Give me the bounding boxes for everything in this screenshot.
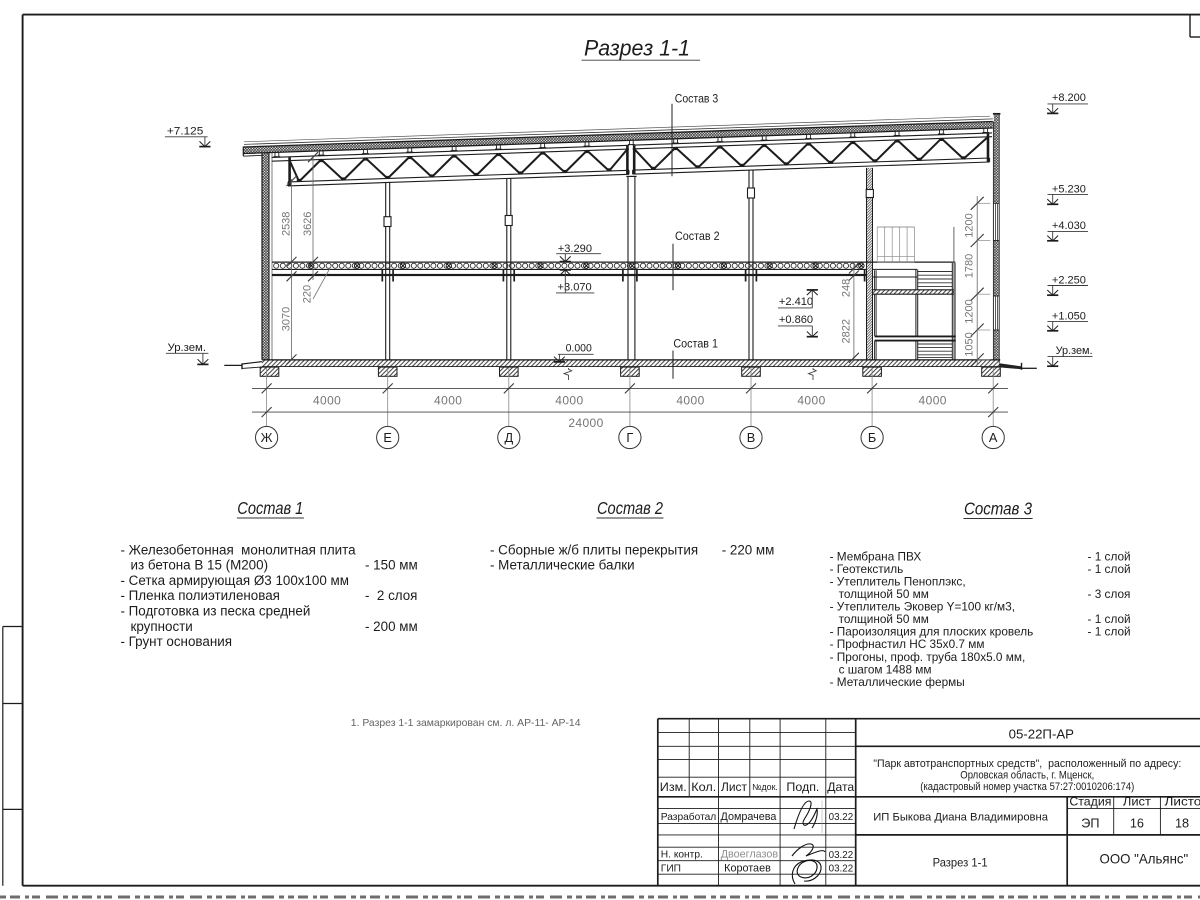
svg-text:03.22: 03.22 [829, 850, 854, 861]
svg-text:1200: 1200 [964, 213, 976, 237]
svg-text:Состав 1: Состав 1 [673, 337, 718, 351]
svg-text:В: В [747, 430, 756, 445]
svg-text:Ур.зем.: Ур.зем. [168, 342, 207, 354]
svg-text:Орловская область, г. Мценск,: Орловская область, г. Мценск, [960, 770, 1094, 782]
svg-text:Коротаев: Коротаев [724, 863, 771, 875]
svg-text:4000: 4000 [434, 394, 462, 408]
svg-text:1780: 1780 [964, 254, 976, 278]
svg-text:3626: 3626 [302, 212, 314, 236]
svg-text:+2.250: +2.250 [1052, 274, 1086, 286]
svg-text:Лист: Лист [721, 780, 747, 794]
svg-text:Домрачева: Домрачева [721, 811, 777, 823]
svg-text:4000: 4000 [676, 394, 704, 408]
svg-text:Е: Е [383, 430, 392, 445]
svg-text:№док.: №док. [752, 782, 778, 792]
svg-text:18: 18 [1175, 817, 1189, 831]
svg-text:+0.860: +0.860 [779, 314, 813, 326]
svg-text:+3.070: +3.070 [558, 282, 592, 294]
svg-text:16: 16 [1130, 817, 1144, 831]
svg-text:Дата: Дата [827, 780, 854, 794]
svg-text:+5.230: +5.230 [1052, 183, 1086, 195]
svg-text:248: 248 [840, 279, 852, 297]
svg-text:+3.290: +3.290 [558, 243, 592, 255]
svg-text:- 1 слой: - 1 слой [1088, 562, 1131, 576]
svg-text:03.22: 03.22 [829, 812, 854, 823]
svg-text:4000: 4000 [797, 394, 825, 408]
svg-text:Подп.: Подп. [786, 780, 819, 794]
svg-text:+1.050: +1.050 [1052, 311, 1086, 323]
svg-text:- Пленка полиэтиленовая: - Пленка полиэтиленовая [121, 588, 280, 603]
svg-text:- 150 мм: - 150 мм [365, 558, 418, 573]
svg-text:Ур.зем.: Ур.зем. [1056, 345, 1093, 357]
svg-text:- 3 слоя: - 3 слоя [1088, 587, 1131, 601]
svg-text:03.22: 03.22 [829, 863, 854, 874]
svg-text:Изм.: Изм. [660, 780, 687, 794]
svg-text:- Железобетонная монолитная п: - Железобетонная монолитная плита [121, 542, 357, 557]
svg-text:из бетона В 15 (М200): из бетона В 15 (М200) [131, 558, 269, 573]
svg-text:ООО "Альянс": ООО "Альянс" [1100, 850, 1189, 866]
svg-text:24000: 24000 [568, 416, 603, 430]
svg-text:Г: Г [626, 430, 633, 445]
svg-text:4000: 4000 [555, 394, 583, 408]
svg-text:- Грунт основания: - Грунт основания [121, 634, 232, 649]
svg-text:Разработал: Разработал [661, 811, 717, 823]
svg-text:Состав 1: Состав 1 [237, 498, 303, 518]
svg-text:Состав 2: Состав 2 [597, 498, 663, 518]
svg-text:1200: 1200 [964, 299, 976, 323]
svg-text:Н. контр.: Н. контр. [661, 850, 703, 861]
svg-text:- 200 мм: - 200 мм [365, 619, 418, 634]
svg-text:05-22П-АР: 05-22П-АР [1009, 727, 1074, 742]
svg-text:Разрез 1-1: Разрез 1-1 [584, 35, 690, 60]
svg-text:Состав 2: Состав 2 [675, 229, 720, 243]
svg-text:1050: 1050 [964, 332, 976, 356]
svg-text:- Металлические фермы: - Металлические фермы [830, 675, 965, 689]
svg-text:+2.410: +2.410 [779, 296, 813, 308]
svg-text:Состав 3: Состав 3 [675, 91, 719, 105]
svg-text:Двоеглазов: Двоеглазов [721, 849, 779, 861]
svg-text:Д: Д [504, 430, 513, 445]
svg-text:Разрез 1-1: Разрез 1-1 [933, 856, 988, 870]
svg-text:Б: Б [868, 430, 876, 445]
svg-text:4000: 4000 [313, 394, 341, 408]
svg-text:- 1 слой: - 1 слой [1088, 625, 1131, 639]
svg-text:Кол.: Кол. [691, 780, 716, 794]
svg-text:1. Разрез 1-1 замаркирован см.: 1. Разрез 1-1 замаркирован см. л. АР-11-… [351, 718, 581, 729]
svg-text:Состав 3: Состав 3 [964, 499, 1032, 519]
svg-text:"Парк автотранспортных средств: "Парк автотранспортных средств", располо… [873, 758, 1181, 770]
svg-text:ГИП: ГИП [661, 864, 681, 875]
svg-text:- 220 мм: - 220 мм [722, 542, 775, 557]
svg-text:2538: 2538 [280, 212, 292, 236]
svg-text:4000: 4000 [919, 394, 947, 408]
svg-text:- Сборные ж/б плиты перекрытия: - Сборные ж/б плиты перекрытия [490, 542, 698, 557]
svg-text:Лист: Лист [1123, 795, 1151, 809]
svg-text:А: А [989, 430, 998, 445]
svg-text:- 2 слоя: - 2 слоя [365, 588, 417, 603]
svg-text:+4.030: +4.030 [1052, 220, 1086, 232]
svg-text:+8.200: +8.200 [1052, 92, 1086, 104]
svg-text:- Сетка армирующая Ø3 100х100: - Сетка армирующая Ø3 100х100 мм [121, 573, 349, 588]
svg-text:3070: 3070 [280, 307, 292, 331]
svg-text:- Подготовка из песка средней: - Подготовка из песка средней [121, 604, 311, 619]
svg-text:2822: 2822 [840, 319, 852, 343]
svg-text:220: 220 [302, 285, 314, 303]
svg-text:+7.125: +7.125 [167, 126, 203, 138]
svg-text:Листов: Листов [1165, 795, 1200, 809]
svg-text:(кадастровый номер участка 57:: (кадастровый номер участка 57:27:0010206… [920, 781, 1134, 793]
svg-text:- Металлические балки: - Металлические балки [490, 558, 635, 573]
svg-text:ИП Быкова Диана Владимировна: ИП Быкова Диана Владимировна [873, 811, 1048, 823]
svg-text:Стадия: Стадия [1069, 795, 1111, 809]
svg-text:Ж: Ж [261, 430, 273, 445]
svg-text:0.000: 0.000 [566, 343, 592, 355]
svg-text:крупности: крупности [131, 619, 193, 634]
svg-text:ЭП: ЭП [1081, 817, 1099, 831]
